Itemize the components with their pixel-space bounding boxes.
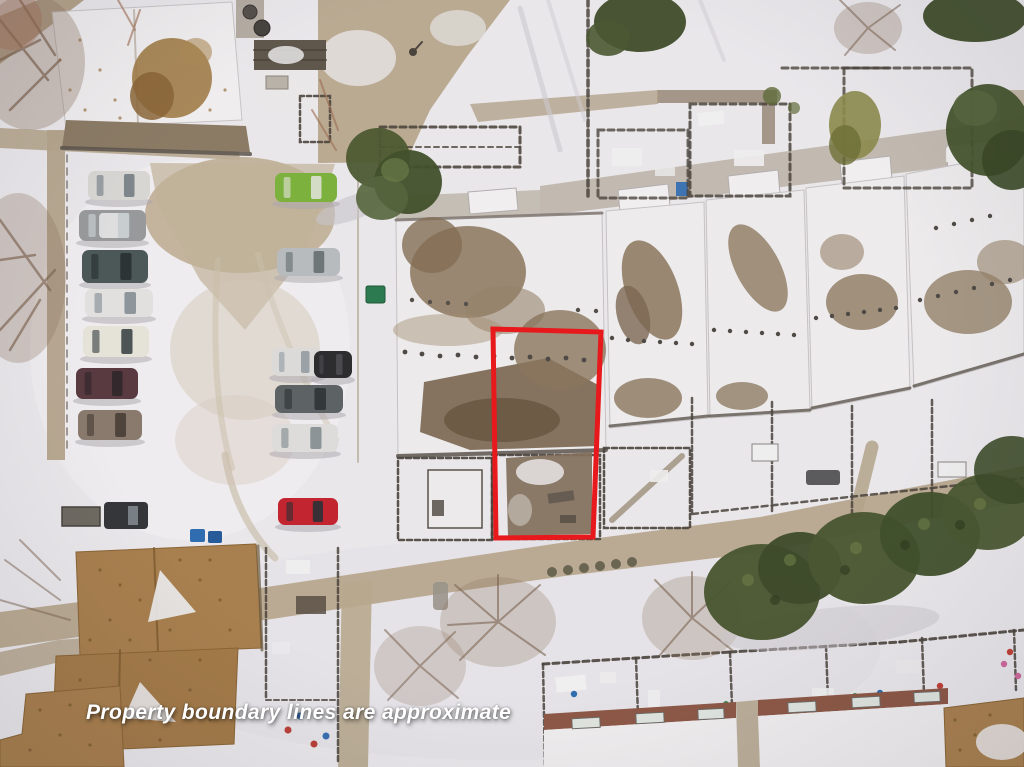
- bush-small: [763, 87, 781, 105]
- roof-gap-path: [736, 700, 760, 767]
- yard-deck-dark: [296, 596, 326, 614]
- car-windshield: [121, 329, 132, 354]
- patio-item-white: [612, 148, 642, 166]
- courtyard-snow-patch: [430, 10, 486, 46]
- truck-cab: [104, 502, 148, 529]
- car-windshield: [313, 501, 323, 522]
- patio-slab: [428, 470, 482, 528]
- car-windshield: [124, 292, 136, 314]
- skylight: [914, 691, 940, 702]
- car-rear-window: [91, 254, 98, 279]
- evergreen-tree: [586, 20, 630, 56]
- car-white: [85, 171, 153, 207]
- patio-snow: [508, 494, 532, 526]
- patio-item: [432, 500, 444, 516]
- car-silver: [274, 248, 343, 283]
- car-rear-window: [286, 252, 293, 272]
- yard-shed: [752, 444, 778, 461]
- aerial-photo-canvas: [0, 0, 1024, 767]
- roof-melt-patch: [402, 217, 462, 273]
- car-cream: [80, 326, 152, 364]
- patio-snow: [516, 459, 564, 485]
- car-windshield: [301, 351, 310, 373]
- roof-townhouse-c: [706, 190, 810, 418]
- car-rear-window: [85, 372, 92, 395]
- car-rear-window: [88, 214, 95, 237]
- car-rear-window: [97, 175, 104, 196]
- car-white: [82, 289, 156, 324]
- truck-window: [128, 506, 138, 525]
- roof-melt-patch: [130, 72, 174, 120]
- barrel: [254, 20, 270, 36]
- car-rear-window: [319, 355, 323, 374]
- car-windshield: [311, 176, 322, 199]
- skylight: [852, 696, 880, 707]
- car-windshield: [336, 354, 342, 375]
- car-windshield: [124, 174, 135, 197]
- car-rear-window: [95, 293, 102, 313]
- car-maroon: [73, 368, 141, 406]
- skylight: [636, 712, 664, 723]
- car-windshield: [310, 427, 321, 449]
- porch-roof: [468, 188, 518, 214]
- skylight: [788, 701, 816, 712]
- yard-item-white: [272, 642, 290, 654]
- car-rear-window: [284, 177, 291, 198]
- roof-melt-patch: [820, 234, 864, 270]
- roof-melt-dark: [444, 398, 560, 442]
- boundary-disclaimer-caption: Property boundary lines are approximate: [86, 701, 511, 725]
- skylight: [572, 717, 600, 728]
- car-windshield: [118, 213, 129, 238]
- truck-black: [311, 351, 355, 385]
- evergreen-tree: [356, 176, 408, 220]
- car-white: [269, 424, 341, 459]
- car-rear-window: [281, 428, 288, 448]
- car-rear-window: [286, 502, 293, 521]
- roof-melt-patch: [514, 310, 606, 390]
- car-windshield: [314, 388, 326, 410]
- yard-item-white: [650, 470, 668, 482]
- roof-melt-patch: [614, 378, 682, 418]
- yard-item-white: [555, 674, 586, 692]
- yard-item-white: [896, 660, 920, 673]
- recycle-bin: [190, 529, 205, 542]
- car-rear-window: [285, 389, 292, 409]
- car-rear-window: [279, 352, 285, 372]
- patio-table: [266, 76, 288, 89]
- roof-melt-patch: [716, 382, 768, 410]
- car-windshield: [120, 253, 131, 280]
- front-yard-item-blue: [676, 182, 688, 196]
- bush-olive-dark: [829, 125, 861, 165]
- car-gray-van: [76, 210, 149, 248]
- car-rear-window: [87, 414, 94, 436]
- evergreen-highlight: [953, 90, 997, 126]
- yard-shed: [938, 462, 966, 477]
- car-red: [275, 498, 341, 532]
- car-dark-teal: [79, 250, 151, 290]
- car-windshield: [115, 413, 126, 437]
- dumpster-green: [366, 286, 385, 303]
- car-bronze: [75, 410, 145, 447]
- patio-item-white: [655, 165, 675, 176]
- aerial-photo: Property boundary lines are approximate: [0, 0, 1024, 767]
- car-windshield: [314, 251, 325, 273]
- truck-trailer: [62, 507, 100, 526]
- deck-snow: [268, 46, 304, 64]
- roof-melt-patch: [180, 38, 212, 66]
- wall-top-right-h: [657, 90, 777, 103]
- car-green: [272, 173, 340, 209]
- road-branch-south: [338, 580, 372, 767]
- yard-item-white: [648, 690, 660, 708]
- patio-item: [560, 515, 576, 523]
- car-rear-window: [92, 330, 99, 353]
- yard-item-white: [286, 560, 310, 574]
- car-windshield: [112, 371, 123, 396]
- courtyard-snow-patch: [320, 30, 396, 86]
- roof-melt-light: [393, 314, 503, 346]
- yard-item-white: [600, 672, 616, 683]
- patio-item-white: [734, 150, 764, 166]
- skylight: [698, 708, 724, 719]
- yard-vehicle: [806, 470, 840, 485]
- roof-melt-patch: [826, 274, 898, 330]
- recycle-bin: [208, 531, 222, 543]
- bush-small: [788, 102, 800, 114]
- car-dark-gray: [272, 385, 346, 420]
- patio-item-white: [697, 111, 724, 127]
- evergreen-highlight: [381, 158, 409, 182]
- barrel: [243, 5, 257, 19]
